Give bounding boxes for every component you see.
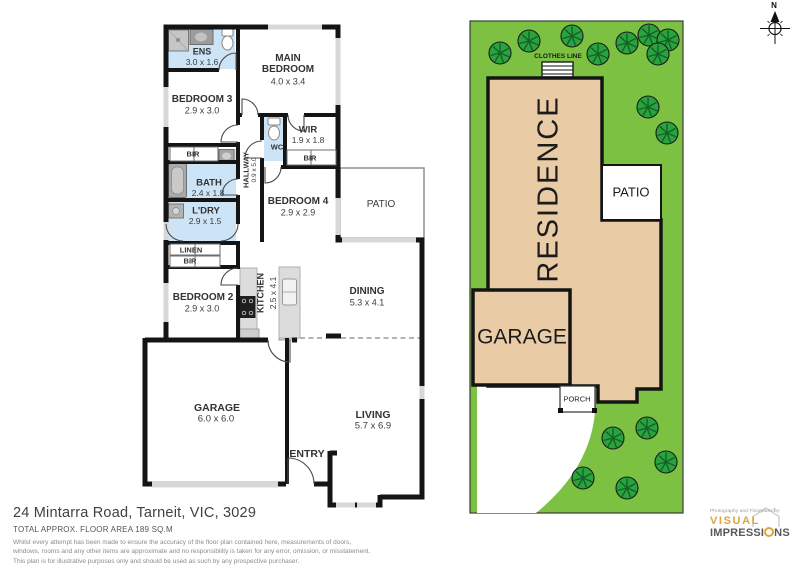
site-label-residence: RESIDENCE <box>535 95 564 282</box>
room-dims-bedroom3: 2.9 x 3.0 <box>185 107 220 116</box>
disclaimer-line: Whilst every attempt has been made to en… <box>13 538 370 547</box>
room-dims-garage: 6.0 x 6.0 <box>198 414 234 424</box>
north-label: N <box>771 2 777 10</box>
closet-label-bir-bed2: BIR <box>184 257 197 265</box>
room-dims-dining: 5.3 x 4.1 <box>350 298 385 307</box>
room-label-kitchen: KITCHEN <box>257 273 266 313</box>
closet-label-bir-bed3: BIR <box>187 150 200 158</box>
room-label-dining: DINING <box>350 287 385 297</box>
site-plan <box>470 21 683 513</box>
logo-name-line2-a: IMPRESSI <box>710 527 764 539</box>
disclaimer-line: windows, rooms and any other items are a… <box>13 547 370 556</box>
disclaimer: Whilst every attempt has been made to en… <box>13 538 370 566</box>
visual-impressions-logo: Photography and Floorplans by VISUAL IMP… <box>710 509 796 539</box>
room-dims-main-bedroom: 4.0 x 3.4 <box>271 78 306 87</box>
room-label-entry: ENTRY <box>289 448 324 459</box>
room-dims-hallway: 0.9 x 5.0 <box>252 158 259 183</box>
north-arrow-icon <box>760 11 790 44</box>
room-label-bedroom2: BEDROOM 2 <box>173 293 234 303</box>
site-label-porch: PORCH <box>563 395 590 403</box>
room-label-patio: PATIO <box>367 200 396 210</box>
stove <box>240 296 256 318</box>
room-label-main-bedroom-2: BEDROOM <box>262 65 314 75</box>
room-label-bedroom3: BEDROOM 3 <box>172 95 233 105</box>
site-label-patio: PATIO <box>612 186 649 199</box>
room-dims-bedroom2: 2.9 x 3.0 <box>185 304 220 313</box>
footer: 24 Mintarra Road, Tarneit, VIC, 3029 TOT… <box>13 505 370 566</box>
floorplan-document: ENS 3.0 x 1.6 MAIN BEDROOM 4.0 x 3.4 BED… <box>0 0 800 566</box>
room-dims-ens: 3.0 x 1.6 <box>186 58 219 67</box>
closet-label-linen: LINEN <box>180 246 203 254</box>
room-dims-living: 5.7 x 6.9 <box>355 421 391 431</box>
closet-label-bir-wir: BIR <box>304 154 317 162</box>
room-label-wc: WC <box>271 143 284 151</box>
garage-door <box>152 481 278 488</box>
room-label-main-bedroom: MAIN <box>275 54 301 64</box>
room-dims-bath: 2.4 x 1.8 <box>192 188 225 197</box>
disclaimer-line: This plan is for illustrative purposes o… <box>13 557 370 566</box>
room-dims-bedroom4: 2.9 x 2.9 <box>281 208 316 217</box>
logo-name-line2: IMPRESSINS <box>710 527 796 539</box>
room-label-ens: ENS <box>193 48 212 57</box>
floor-plan-and-site-plan-drawing <box>0 0 800 566</box>
wc-toilet <box>269 126 280 140</box>
room-label-bedroom4: BEDROOM 4 <box>268 197 329 207</box>
aperture-icon <box>764 527 774 537</box>
room-dims-laundry: 2.9 x 1.5 <box>189 216 222 225</box>
room-dims-kitchen: 2.5 x 4.1 <box>268 277 277 310</box>
logo-tagline: Photography and Floorplans by <box>710 509 796 514</box>
site-label-clothes-line: CLOTHES LINE <box>534 53 582 60</box>
room-label-living: LIVING <box>355 410 390 421</box>
room-label-hallway: HALLWAY <box>242 152 250 188</box>
room-dims-wir: 1.9 x 1.8 <box>292 136 325 145</box>
floor-area-text: TOTAL APPROX. FLOOR AREA 189 SQ.M <box>13 525 370 534</box>
address-title: 24 Mintarra Road, Tarneit, VIC, 3029 <box>13 505 370 521</box>
clothes-line <box>542 62 573 77</box>
ens-toilet <box>222 36 233 50</box>
logo-name-line2-b: NS <box>774 527 790 539</box>
site-label-garage: GARAGE <box>477 327 567 348</box>
logo-name-line1: VISUAL <box>710 515 796 527</box>
room-label-garage: GARAGE <box>194 402 240 413</box>
room-label-wir: WIR <box>299 125 317 135</box>
